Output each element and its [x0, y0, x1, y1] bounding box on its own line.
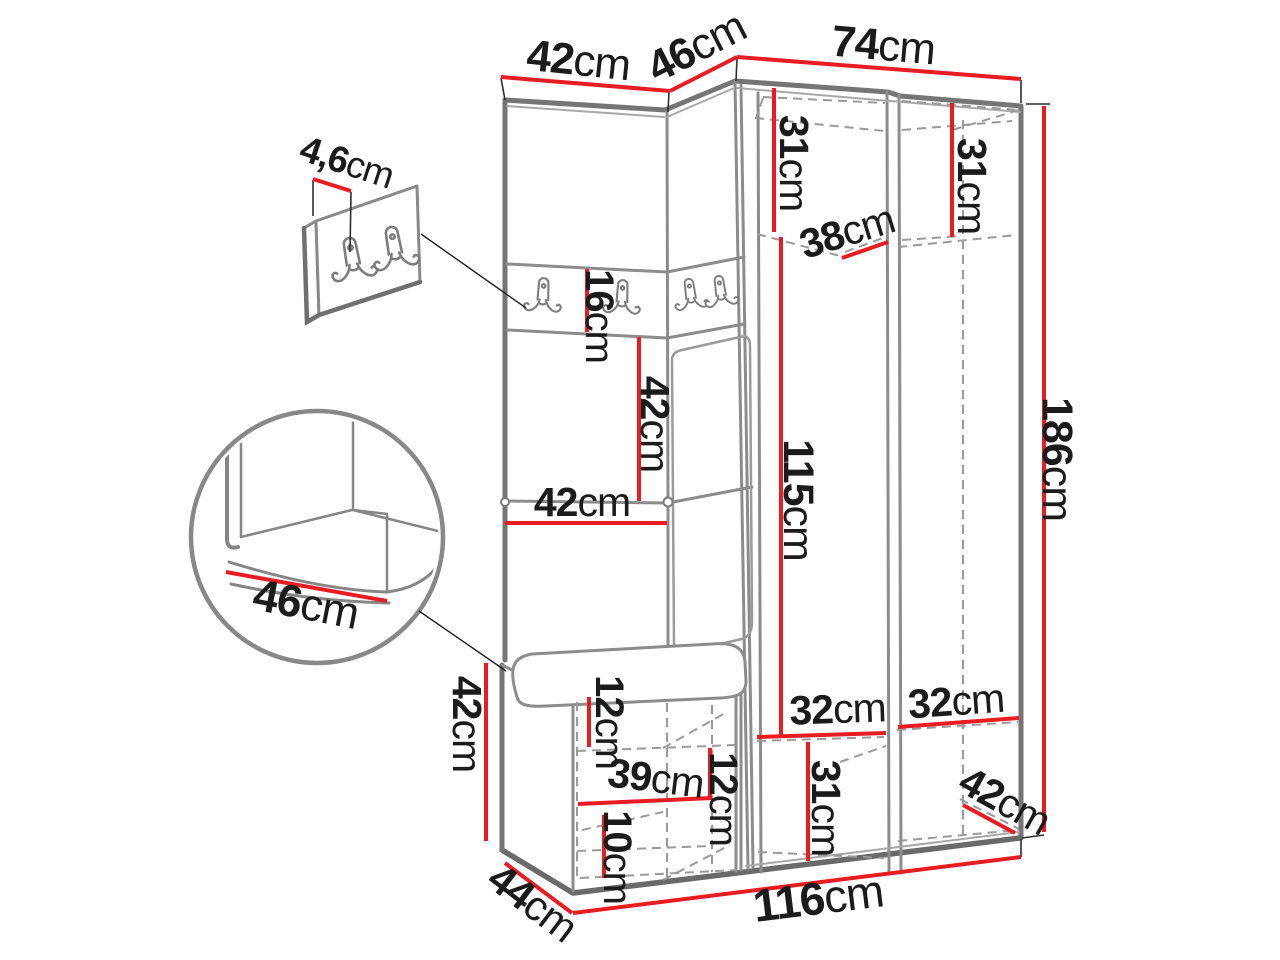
dim-label-left-panel-width: 42cm [534, 479, 630, 525]
dim-label-bottom-left-height: 31cm [803, 760, 849, 856]
dim-label-bottom-shelf-left-width: 32cm [789, 684, 887, 733]
dim-label-total-height: 186cm [1033, 397, 1081, 521]
coat-hook-icon [702, 274, 739, 308]
dim-label-upper-left-height: 31cm [771, 115, 817, 211]
dim-label-total-width: 116cm [750, 864, 886, 932]
hook-band-bottom-line [507, 324, 744, 338]
hook-panel-front-face [316, 186, 420, 315]
shelf-joint-node-right [664, 498, 673, 507]
dim-label-top-width-right: 74cm [830, 17, 937, 75]
coat-hook-icon [672, 277, 709, 311]
hook-band-top-line [507, 257, 744, 272]
coat-hook-icon [524, 277, 562, 312]
dim-line-bottom-shelf-left-width [757, 733, 886, 737]
dim-label-bench-shelf-width: 39cm [605, 749, 706, 806]
shelf-joint-node-left [501, 498, 509, 506]
dim-label-door-height: 115cm [774, 439, 822, 561]
dim-label-upper-right-height: 31cm [949, 138, 995, 234]
pointer-hook-panel [421, 234, 526, 308]
dim-label-bottom-shelf-right-width: 32cm [906, 675, 1005, 728]
dim-label-bench-mid-gap: 12cm [701, 752, 745, 846]
dim-label-bench-height: 42cm [444, 676, 490, 772]
dim-label-mid-opening-height: 42cm [632, 376, 678, 472]
pointer-detail-circle [419, 611, 506, 671]
diagram-canvas: 42cm 46cm 74cm 4,6cm 31cm 31cm 38cm 16cm… [0, 0, 1280, 960]
dim-label-hook-strip-height: 16cm [577, 269, 621, 363]
dim-label-bench-bottom-gap: 10cm [595, 810, 639, 904]
dim-label-hook-panel-offset: 4,6cm [295, 128, 399, 197]
hook-panel-detail [304, 186, 420, 322]
right-section-left-door-edge [758, 93, 761, 872]
furniture-dimension-diagram: 42cm 46cm 74cm 4,6cm 31cm 31cm 38cm 16cm… [0, 0, 1280, 960]
